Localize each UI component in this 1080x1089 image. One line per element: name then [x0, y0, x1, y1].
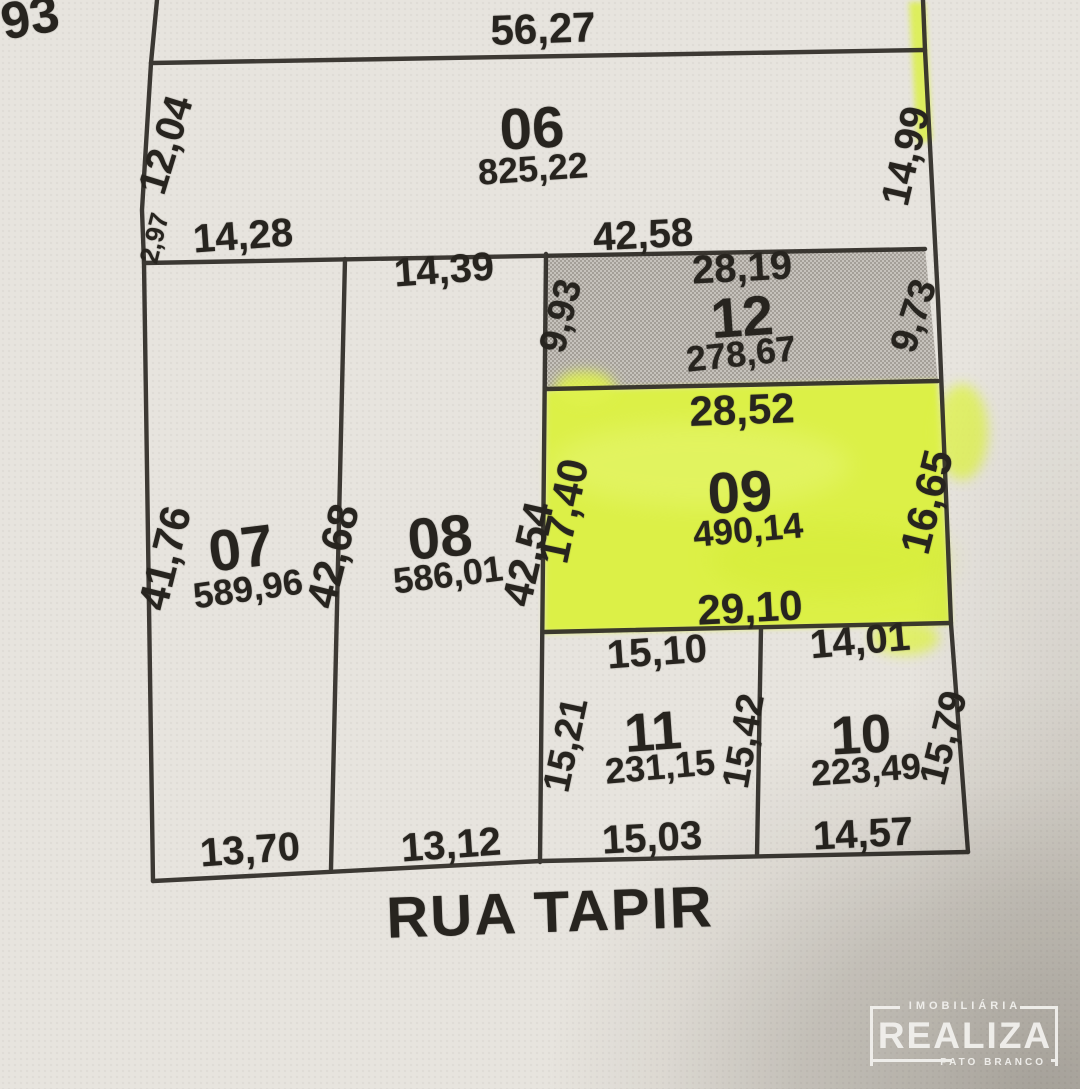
logo-city-text: PATO BRANCO	[940, 1057, 1046, 1068]
dim-lot06-top: 56,27	[490, 6, 597, 52]
street-name: RUA TAPIR	[385, 878, 714, 947]
lot10-area: 223,49	[810, 748, 922, 792]
dim-lot08-bottom: 13,12	[400, 822, 503, 869]
lot06-area: 825,22	[477, 147, 589, 191]
dim-lot10-top: 14,01	[808, 617, 911, 666]
dim-lot08-top: 14,39	[393, 247, 496, 294]
logo-frame-bottom-right	[1051, 1059, 1058, 1062]
dim-lot07-bottom: 13,70	[199, 827, 302, 874]
logo-brand-name: REALIZA	[870, 1015, 1060, 1057]
dim-lot11-bottom: 15,03	[601, 815, 703, 860]
lot09-area: 490,14	[692, 507, 805, 552]
dim-lot09-top: 28,52	[689, 387, 796, 433]
realiza-logo: IMOBILIÁRIA REALIZA PATO BRANCO	[870, 1000, 1060, 1072]
dim-lot06-bottom-left: 14,28	[192, 213, 295, 260]
survey-map-scan: 93 56,27 06 825,22 12,04 2,97 14,28 42,5…	[0, 0, 1080, 1089]
lot11-area: 231,15	[604, 744, 717, 789]
dim-lot11-top: 15,10	[606, 629, 709, 676]
dim-lot09-bottom: 29,10	[696, 584, 803, 631]
dim-lot10-bottom: 14,57	[812, 811, 914, 856]
boundary-top-left-stub	[151, 0, 157, 63]
corner-text: 93	[0, 0, 63, 49]
logo-sector-text: IMOBILIÁRIA	[870, 1000, 1060, 1012]
dim-lot12-top: 28,19	[691, 245, 793, 290]
dim-lot06-bottom-right: 42,58	[592, 212, 694, 257]
